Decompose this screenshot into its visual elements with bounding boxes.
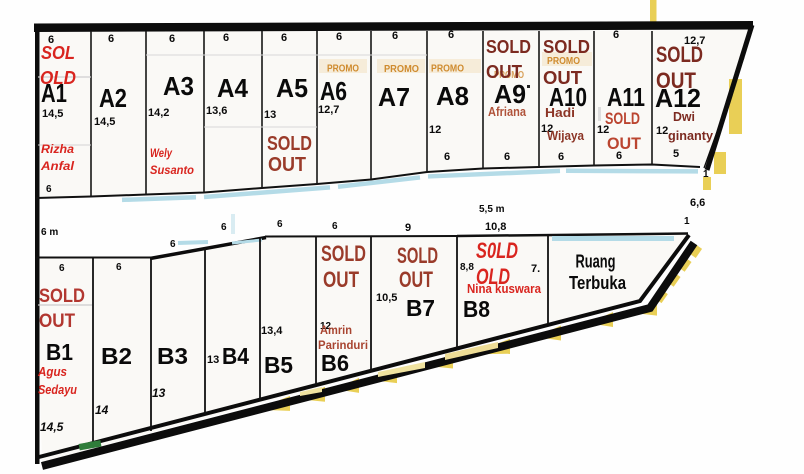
- svg-text:6: 6: [108, 33, 114, 45]
- svg-text:6: 6: [116, 262, 122, 273]
- svg-text:A11: A11: [607, 82, 645, 112]
- svg-text:B2: B2: [101, 343, 132, 369]
- svg-text:9: 9: [405, 222, 411, 234]
- svg-text:Agus: Agus: [37, 364, 67, 379]
- svg-text:6: 6: [336, 31, 342, 43]
- svg-text:5,5 m: 5,5 m: [479, 204, 505, 215]
- svg-text:6: 6: [170, 239, 176, 250]
- svg-text:13: 13: [264, 109, 276, 121]
- svg-text:Afriana: Afriana: [488, 104, 527, 119]
- svg-text:13,4: 13,4: [261, 325, 283, 337]
- svg-text:SOLD: SOLD: [656, 42, 703, 67]
- svg-text:SOLD: SOLD: [321, 241, 366, 266]
- svg-text:Sedayu: Sedayu: [38, 382, 77, 397]
- svg-text:12: 12: [429, 124, 441, 136]
- svg-text:14,5: 14,5: [40, 420, 64, 434]
- svg-text:PROMO: PROMO: [431, 63, 464, 75]
- svg-text:6: 6: [448, 29, 454, 41]
- svg-text:Susanto: Susanto: [150, 163, 194, 177]
- svg-text:B1: B1: [46, 339, 73, 365]
- svg-text:14: 14: [95, 403, 109, 417]
- svg-text:Wijaya: Wijaya: [547, 128, 585, 143]
- svg-text:10,8: 10,8: [485, 221, 506, 233]
- svg-text:6: 6: [223, 32, 229, 44]
- svg-text:7.: 7.: [531, 263, 540, 275]
- svg-text:6: 6: [444, 151, 450, 163]
- svg-text:6: 6: [59, 263, 65, 274]
- svg-text:13: 13: [152, 386, 166, 400]
- svg-text:Anfal: Anfal: [40, 159, 75, 173]
- svg-text:6,6: 6,6: [690, 197, 705, 209]
- svg-text:Nina kuswara: Nina kuswara: [467, 281, 542, 296]
- svg-text:SOL: SOL: [41, 43, 75, 63]
- svg-text:OUT: OUT: [607, 134, 642, 153]
- svg-text:6: 6: [332, 221, 338, 232]
- svg-text:B3: B3: [157, 343, 188, 369]
- svg-text:A2: A2: [99, 83, 127, 113]
- svg-text:SOLD: SOLD: [267, 133, 312, 155]
- svg-text:B5: B5: [264, 352, 293, 378]
- svg-text:SOLD: SOLD: [543, 37, 590, 57]
- svg-text:OLD: OLD: [40, 68, 76, 88]
- svg-text:OUT: OUT: [399, 267, 433, 292]
- svg-text:Terbuka: Terbuka: [569, 273, 627, 293]
- svg-text:Wely: Wely: [150, 146, 173, 160]
- svg-text:5: 5: [673, 148, 679, 160]
- svg-text:6: 6: [277, 219, 283, 230]
- svg-text:12,7: 12,7: [318, 104, 339, 116]
- svg-text:Amrin: Amrin: [320, 323, 352, 337]
- svg-text:PROMO: PROMO: [547, 55, 580, 67]
- svg-text:B6: B6: [321, 350, 349, 376]
- svg-text:A4: A4: [217, 73, 248, 103]
- svg-text:OUT: OUT: [486, 62, 522, 82]
- svg-text:A3: A3: [163, 71, 194, 101]
- svg-text:6: 6: [169, 33, 175, 45]
- svg-text:13,6: 13,6: [206, 105, 227, 117]
- svg-text:8,8: 8,8: [460, 262, 474, 273]
- svg-text:14,5: 14,5: [94, 116, 115, 128]
- svg-text:A8: A8: [436, 81, 469, 111]
- svg-text:OUT: OUT: [656, 68, 696, 93]
- svg-text:OUT: OUT: [543, 68, 582, 88]
- svg-text:Dwi: Dwi: [673, 109, 695, 124]
- svg-text:14,2: 14,2: [148, 107, 169, 119]
- svg-text:6: 6: [281, 32, 287, 44]
- svg-text:PROMO: PROMO: [384, 63, 419, 75]
- svg-text:OUT: OUT: [323, 267, 359, 292]
- svg-text:B4: B4: [222, 343, 249, 369]
- svg-text:OUT: OUT: [268, 154, 306, 176]
- svg-text:OUT: OUT: [39, 311, 75, 332]
- svg-text:1: 1: [684, 216, 690, 227]
- svg-text:12: 12: [656, 125, 668, 137]
- svg-text:6: 6: [392, 30, 398, 42]
- svg-text:SOLD: SOLD: [39, 286, 85, 307]
- svg-text:13: 13: [207, 354, 219, 366]
- svg-text:6 m: 6 m: [41, 227, 58, 238]
- svg-text:Hadi: Hadi: [545, 105, 575, 120]
- svg-text:SOLD: SOLD: [397, 243, 438, 268]
- svg-text:B7: B7: [406, 295, 435, 321]
- svg-text:6: 6: [613, 29, 619, 41]
- svg-text:A6: A6: [320, 76, 347, 106]
- svg-text:6: 6: [46, 184, 52, 195]
- svg-text:Ruang: Ruang: [576, 252, 616, 272]
- svg-text:SOLD: SOLD: [605, 109, 640, 128]
- svg-text:A5: A5: [276, 73, 308, 103]
- svg-text:B8: B8: [463, 296, 490, 322]
- svg-text:Rizha: Rizha: [41, 142, 74, 156]
- svg-text:10,5: 10,5: [376, 292, 397, 304]
- svg-text:6: 6: [558, 151, 564, 163]
- svg-text:1: 1: [703, 169, 709, 180]
- svg-text:PROMO: PROMO: [327, 63, 359, 75]
- svg-text:SOLD: SOLD: [486, 37, 531, 57]
- svg-text:S0LD: S0LD: [476, 238, 518, 263]
- svg-text:6: 6: [221, 222, 227, 233]
- svg-text:A7: A7: [378, 82, 410, 112]
- svg-text:ginanty: ginanty: [668, 128, 714, 143]
- svg-text:6: 6: [504, 151, 510, 163]
- svg-text:14,5: 14,5: [42, 108, 63, 120]
